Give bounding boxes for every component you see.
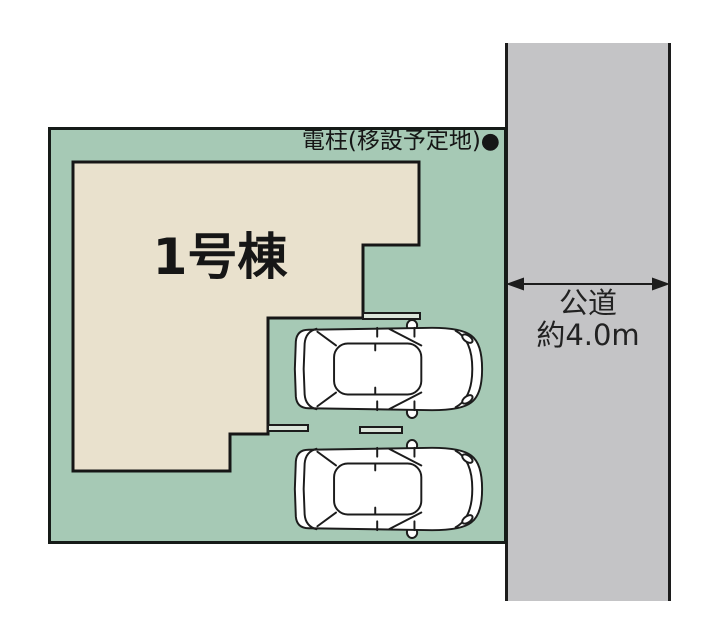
utility-pole-label: 電柱(移設予定地)● (302, 129, 500, 154)
road-name: 公道 (505, 287, 671, 319)
building-label: 1号棟 (125, 217, 315, 289)
road-width: 約4.0m (505, 319, 671, 351)
utility-pole-text: 電柱(移設予定地) (302, 128, 481, 154)
parking-divider (363, 313, 420, 319)
car-icon (295, 440, 482, 538)
parking-divider (360, 427, 402, 433)
utility-pole-dot-icon: ● (481, 129, 500, 154)
road-label: 公道 約4.0m (505, 287, 671, 352)
parking-divider (268, 425, 308, 431)
site-plan-canvas: 電柱(移設予定地)● 1号棟 公道 約4.0m (0, 0, 703, 630)
car-icon (295, 320, 482, 418)
